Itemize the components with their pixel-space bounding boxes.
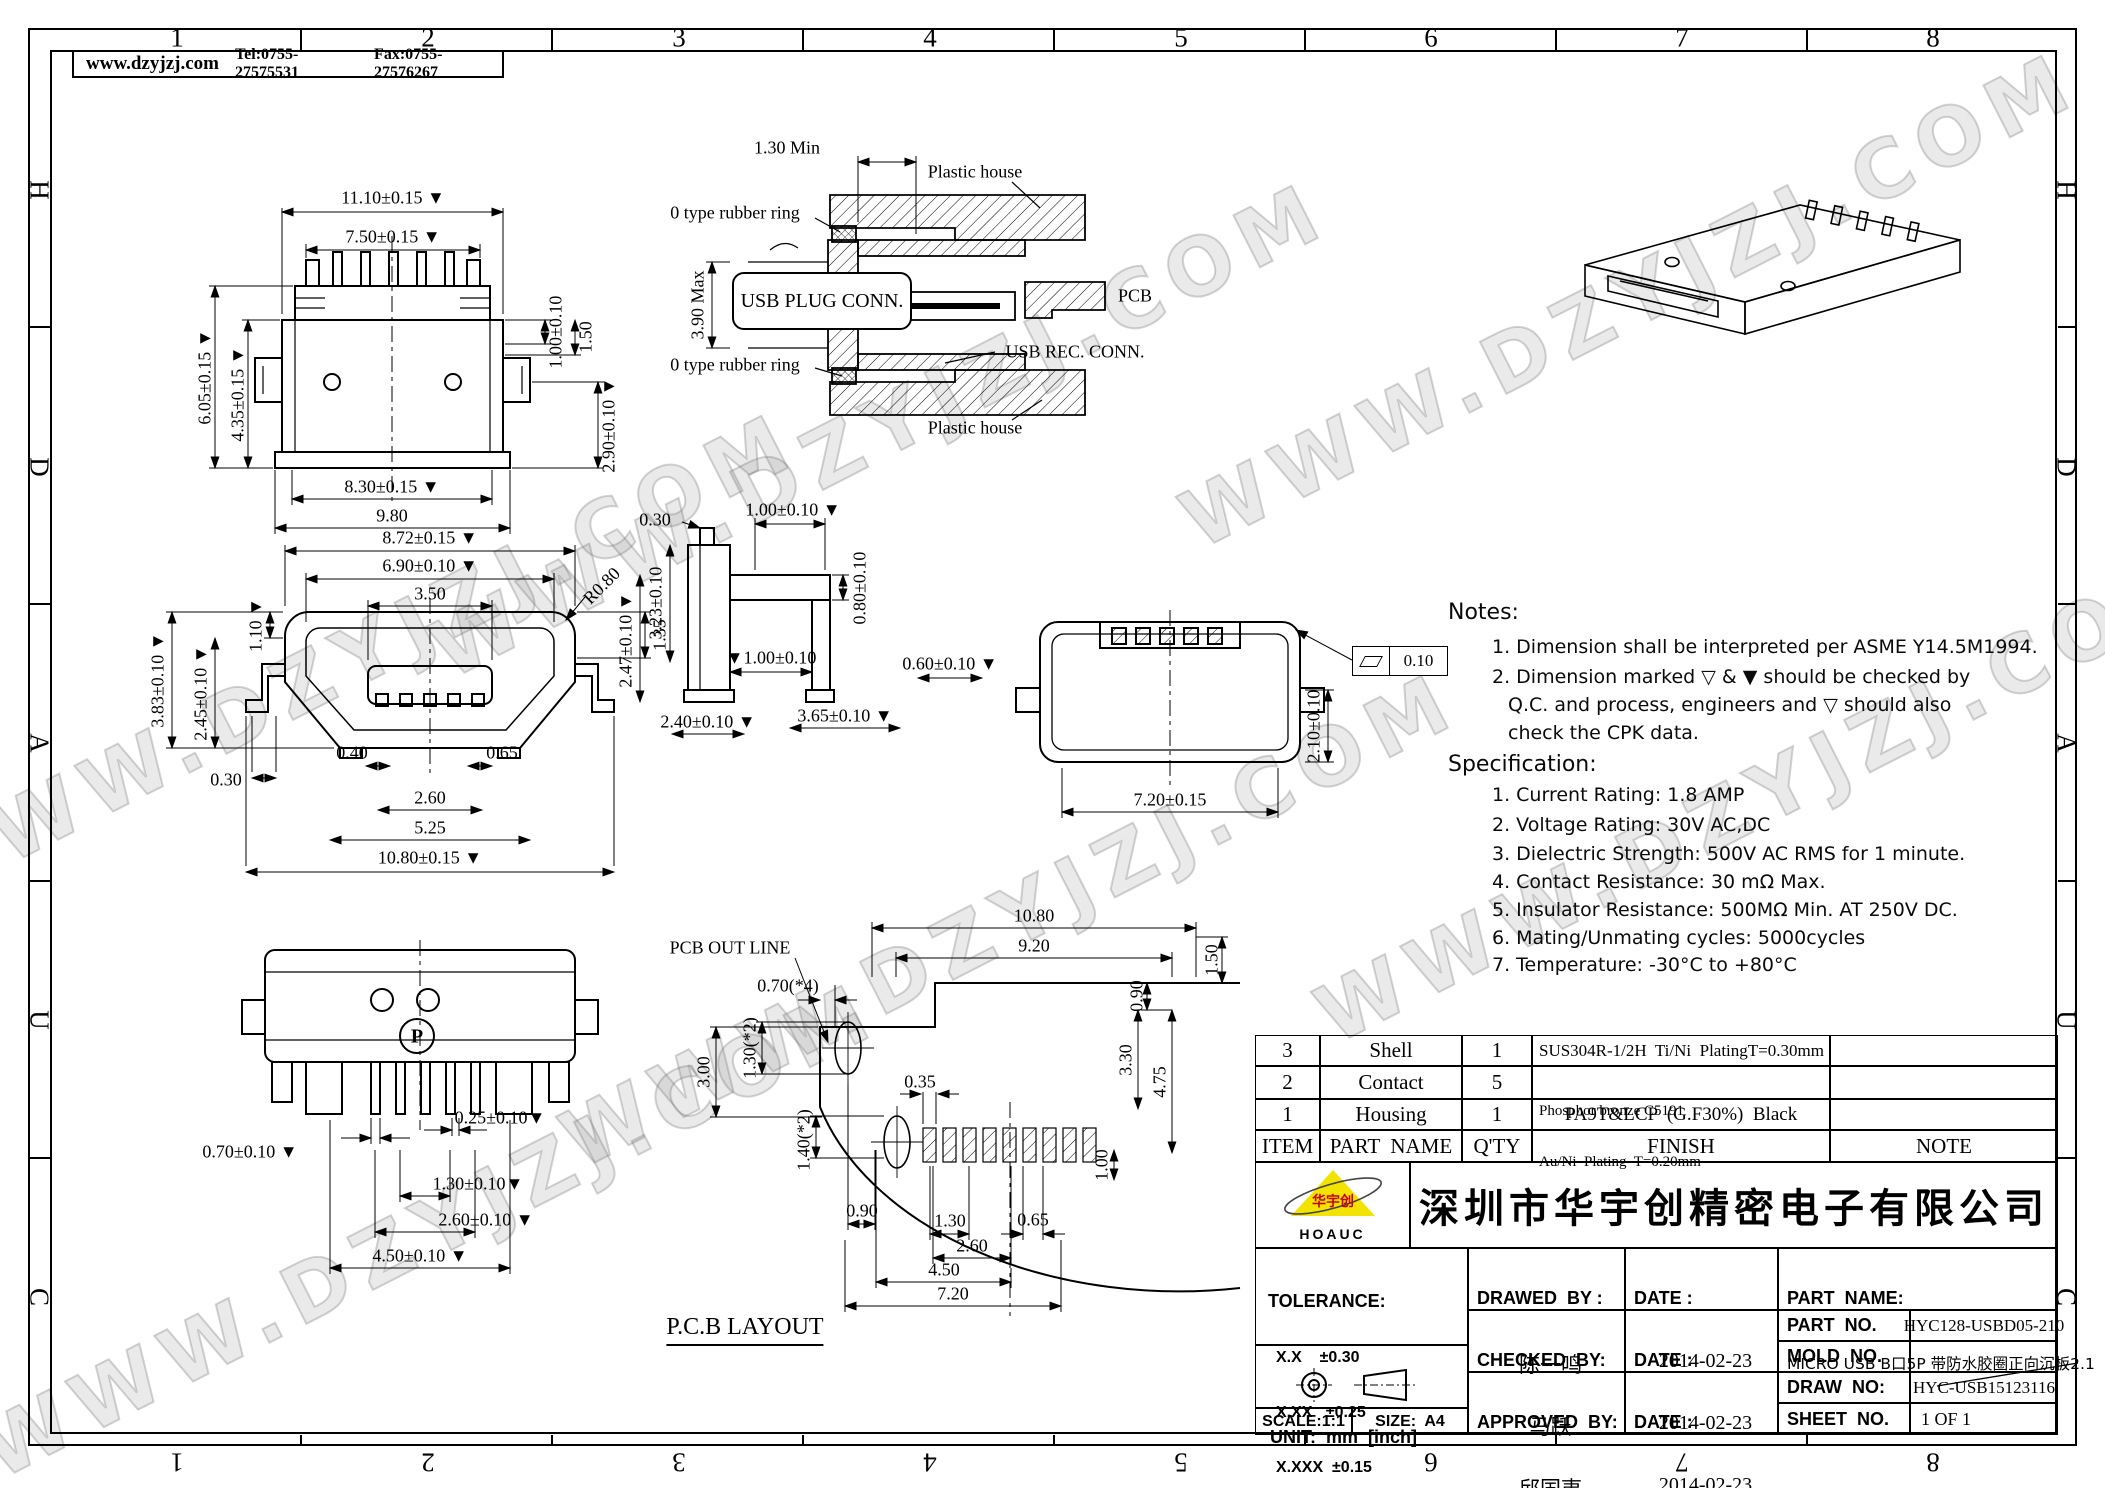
date-label: DATE : [1634, 1412, 1777, 1433]
draw-no-value: HYC-USB15123116 [1910, 1372, 2058, 1403]
spec-item: 3. Dielectric Strength: 500V AC RMS for … [1492, 843, 1965, 865]
zone-label: U [2051, 1010, 2082, 1030]
parts-and-title-block: 3 Shell 1 SUS304R-1/2H Ti/Ni PlatingT=0.… [1255, 1035, 2058, 1435]
mold-no-label: MOLD NO. [1778, 1341, 1910, 1372]
dim-label: 2.60±0.10 ▼ [438, 1210, 533, 1231]
dim-label: 4.35±0.15 ▼ [228, 346, 249, 441]
zone-label: 5 [1174, 1447, 1188, 1478]
part-no-label: PART NO. [1778, 1310, 1910, 1341]
drawn-by-label: DRAWED BY : [1477, 1288, 1624, 1309]
dim-label: 0.90 [1127, 980, 1148, 1012]
zone-label: 1 [170, 1447, 184, 1478]
date-value: 2014-02-23 [1634, 1474, 1777, 1488]
approved-by-cell: APPROVED BY: 邱国夷 [1468, 1372, 1625, 1435]
dim-label: 0.30 [210, 770, 242, 791]
dim-label: 0.35 [904, 1072, 936, 1093]
date-cell: DATE : 2014-02-23 [1625, 1372, 1778, 1435]
zone-label: U [24, 1010, 55, 1030]
parts-item-cell: 3 [1255, 1035, 1320, 1066]
zone-label: 2 [421, 1447, 435, 1478]
size-cell: SIZE: A4 [1352, 1408, 1468, 1435]
company-logo: 华宇创 HOAUC [1255, 1162, 1410, 1248]
approved-by-label: APPROVED BY: [1477, 1412, 1624, 1433]
zone-label: 4 [923, 23, 937, 54]
spec-item: 6. Mating/Unmating cycles: 5000cycles [1492, 927, 1865, 949]
polarity-mark: P [411, 1026, 423, 1049]
dim-label: 0.70(*4) [757, 976, 819, 997]
parts-finish-cell: Phosphor bronze C5191 Au/Ni Plating T=0.… [1532, 1066, 1830, 1099]
dim-label: 1.30 Min [754, 138, 820, 159]
sheet-no-label: SHEET NO. [1778, 1403, 1910, 1435]
dim-label: 1.00±0.10 ▼ [745, 500, 840, 521]
dim-label: 1.50 [576, 321, 597, 353]
zone-label: 4 [923, 1447, 937, 1478]
dim-label: 3.50 [414, 584, 446, 605]
zone-label: 6 [1424, 23, 1438, 54]
dim-label: 8.72±0.15 ▼ [382, 528, 477, 549]
dim-label: 7.50±0.15 ▼ [345, 227, 440, 248]
dim-label: 2.60 [956, 1236, 988, 1257]
parts-qty-cell: 1 [1462, 1099, 1532, 1130]
dim-label: 0.65 [486, 743, 518, 764]
third-angle-projection-icon [1294, 1368, 1444, 1402]
date-cell: DATE : 2014-02-23 [1625, 1248, 1778, 1310]
note-line: 2. Dimension marked ▽ & ▼ should be chec… [1492, 666, 1970, 688]
date-label: DATE : [1634, 1288, 1777, 1309]
scale-cell: SCALE:1:1 [1255, 1408, 1352, 1435]
parts-header-item: ITEM [1255, 1130, 1320, 1162]
dim-label: 0.30 [639, 510, 671, 531]
zone-label: 1 [170, 23, 184, 54]
dim-label: 1.50 [1202, 944, 1223, 976]
fax-text: Fax:0755-27576267 [374, 46, 502, 82]
zone-label: C [24, 1288, 55, 1306]
spec-item: 2. Voltage Rating: 30V AC,DC [1492, 814, 1770, 836]
zone-label: A [2051, 733, 2082, 753]
callout-label: PCB OUT LINE [670, 938, 791, 959]
dim-label: 1.30±0.10▼ [433, 1174, 524, 1195]
drawing-sheet: WWW.DZYJZJ.COM WWW.DZYJZJ.COM WWW.DZYJZJ… [0, 0, 2105, 1488]
parts-header-qty: Q'TY [1462, 1130, 1532, 1162]
callout-label: USB PLUG CONN. [741, 290, 904, 313]
checked-by-cell: CHECKED BY: 马跃 [1468, 1310, 1625, 1372]
parts-item-cell: 2 [1255, 1066, 1320, 1099]
dim-label: 6.05±0.15 ▼ [195, 329, 216, 424]
sheet-no-value: 1 OF 1 [1910, 1403, 2058, 1435]
mold-no-value [1910, 1341, 2058, 1372]
parts-qty-cell: 1 [1462, 1035, 1532, 1066]
callout-label: USB REC. CONN. [1005, 342, 1144, 363]
dim-label: 0.90 [846, 1201, 878, 1222]
zone-label: A [24, 733, 55, 753]
logo-graphic: 华宇创 [1278, 1168, 1388, 1226]
parts-item-cell: 1 [1255, 1099, 1320, 1130]
dim-label: 0.70±0.10 ▼ [202, 1142, 297, 1163]
dim-label: 2.47±0.10 ▼ [616, 592, 637, 687]
dim-label: 3.23±0.10 [646, 567, 667, 640]
dim-label: 0.65 [1017, 1210, 1049, 1231]
zone-label: 3 [672, 1447, 686, 1478]
dim-label: 0.60±0.10 ▼ [902, 654, 997, 675]
flatness-value: 0.10 [1390, 647, 1447, 675]
dim-label: 2.40±0.10 ▼ [660, 712, 755, 733]
parts-name-cell: Contact [1320, 1066, 1462, 1099]
callout-label: 0 type rubber ring [670, 355, 799, 376]
dim-label: 3.90 Max [688, 271, 709, 340]
spec-item: 7. Temperature: -30°C to +80°C [1492, 954, 1797, 976]
usb-plug-callout-box: USB PLUG CONN. [732, 272, 912, 330]
parts-note-cell [1830, 1099, 2058, 1130]
dim-label: 7.20 [937, 1284, 969, 1305]
parts-note-cell [1830, 1066, 2058, 1099]
contact-header: www.dzyjzj.com Tel:0755-27575531 Fax:075… [72, 50, 504, 78]
logo-en-text: HOAUC [1299, 1226, 1365, 1242]
dim-label: 3.65±0.10 ▼ [797, 706, 892, 727]
parts-note-cell [1830, 1035, 2058, 1066]
dim-label: 0.25±0.10▼ [455, 1108, 546, 1129]
date-cell: DATE : 2014-02-23 [1625, 1310, 1778, 1372]
tolerance-label: TOLERANCE: [1268, 1291, 1467, 1312]
zone-label: H [24, 180, 55, 200]
dim-label: 6.90±0.10 ▼ [382, 556, 477, 577]
logo-cn-text: 华宇创 [1312, 1193, 1354, 1210]
dim-label: 4.50 [928, 1260, 960, 1281]
zone-label: 8 [1926, 1447, 1940, 1478]
part-name-label: PART NAME: [1787, 1288, 2057, 1309]
dim-label: 1.10 ▼ [246, 598, 267, 652]
flatness-icon-cell [1353, 647, 1390, 675]
dim-label: 11.10±0.15 ▼ [341, 188, 445, 209]
date-label: DATE : [1634, 1350, 1777, 1371]
zone-label: D [2051, 457, 2082, 477]
part-name-cell: PART NAME: MICRO USB B口5P 带防水胶圈正向沉板2.1 [1778, 1248, 2058, 1310]
dim-label: 1.00 [1092, 1149, 1113, 1181]
note-line: check the CPK data. [1508, 722, 1699, 744]
zone-label: 7 [1675, 23, 1689, 54]
zone-label: H [2051, 180, 2082, 200]
parts-finish-cell: SUS304R-1/2H Ti/Ni PlatingT=0.30mm [1532, 1035, 1830, 1066]
company-name: 深圳市华宇创精密电子有限公司 [1410, 1162, 2058, 1248]
callout-label: Plastic house [928, 418, 1023, 439]
specification-title: Specification: [1448, 752, 1597, 777]
note-line: Q.C. and process, engineers and ▽ should… [1508, 694, 1951, 716]
dim-label: 7.20±0.15 [1134, 790, 1207, 811]
flatness-tolerance-frame: 0.10 [1352, 646, 1448, 676]
drawn-by-cell: DRAWED BY : 陈一鸣 [1468, 1248, 1625, 1310]
dim-label: 1.40(*2) [794, 1109, 815, 1171]
projection-unit-cell: UNIT: mm [inch] [1255, 1345, 1468, 1408]
dim-label: 2.10±0.10 [1304, 690, 1325, 763]
dim-label: 9.80 [376, 506, 408, 527]
parts-name-cell: Housing [1320, 1099, 1462, 1130]
zone-label: 5 [1174, 23, 1188, 54]
note-line: 1. Dimension shall be interpreted per AS… [1492, 636, 2038, 658]
dim-label: 9.20 [1018, 936, 1050, 957]
parts-finish-cell: PA9T&LCP (G.F30%) Black [1532, 1099, 1830, 1130]
parts-qty-cell: 5 [1462, 1066, 1532, 1099]
dim-label: 4.50±0.10 ▼ [372, 1246, 467, 1267]
draw-no-label: DRAW NO: [1778, 1372, 1910, 1403]
dim-label: ▼1.00±0.10 [726, 648, 817, 669]
dim-label: 0.40 [336, 743, 368, 764]
dim-label: 10.80±0.15 ▼ [378, 848, 482, 869]
website-text: www.dzyjzj.com [86, 53, 219, 75]
checked-by-label: CHECKED BY: [1477, 1350, 1624, 1371]
spec-item: 1. Current Rating: 1.8 AMP [1492, 784, 1744, 806]
dim-label: 2.90±0.10 ▼ [599, 377, 620, 472]
tolerance-block: TOLERANCE: X.X ±0.30 X.XX ±0.25 X.XXX ±0… [1255, 1248, 1468, 1345]
zone-label: 3 [672, 23, 686, 54]
parts-name-cell: Shell [1320, 1035, 1462, 1066]
dim-label: 2.60 [414, 788, 446, 809]
callout-label: Plastic house [928, 162, 1023, 183]
dim-label: 3.30 [1116, 1044, 1137, 1076]
dim-label: 10.80 [1014, 906, 1055, 927]
dim-label: 3.00 [694, 1056, 715, 1088]
callout-label: PCB [1118, 286, 1152, 307]
flatness-icon [1359, 656, 1383, 667]
spec-item: 5. Insulator Resistance: 500MΩ Min. AT 2… [1492, 899, 1958, 921]
dim-label: 4.75 [1150, 1066, 1171, 1098]
dim-label: 3.83±0.10 ▼ [148, 632, 169, 727]
notes-title: Notes: [1448, 600, 1519, 625]
parts-header-name: PART NAME [1320, 1130, 1462, 1162]
pcb-layout-title: P.C.B LAYOUT [666, 1314, 823, 1346]
dim-label: 5.25 [414, 818, 446, 839]
dim-label: 1.30(*2) [740, 1017, 761, 1079]
zone-label: D [24, 457, 55, 477]
approved-by-name: 邱国夷 [1477, 1473, 1624, 1488]
dim-label: 0.80±0.10 [850, 552, 871, 625]
part-no-value: HYC128-USBD05-210 [1910, 1310, 2058, 1341]
parts-header-finish: FINISH [1532, 1130, 1830, 1162]
telephone-text: Tel:0755-27575531 [235, 46, 358, 82]
dim-label: 1.30 [934, 1211, 966, 1232]
dim-label: 8.30±0.15 ▼ [344, 477, 439, 498]
callout-label: 0 type rubber ring [670, 203, 799, 224]
zone-label: 8 [1926, 23, 1940, 54]
dim-label: 1.00±0.10 [546, 296, 567, 369]
spec-item: 4. Contact Resistance: 30 mΩ Max. [1492, 871, 1826, 893]
parts-header-note: NOTE [1830, 1130, 2058, 1162]
dim-label: 2.45±0.10 ▼ [191, 645, 212, 740]
